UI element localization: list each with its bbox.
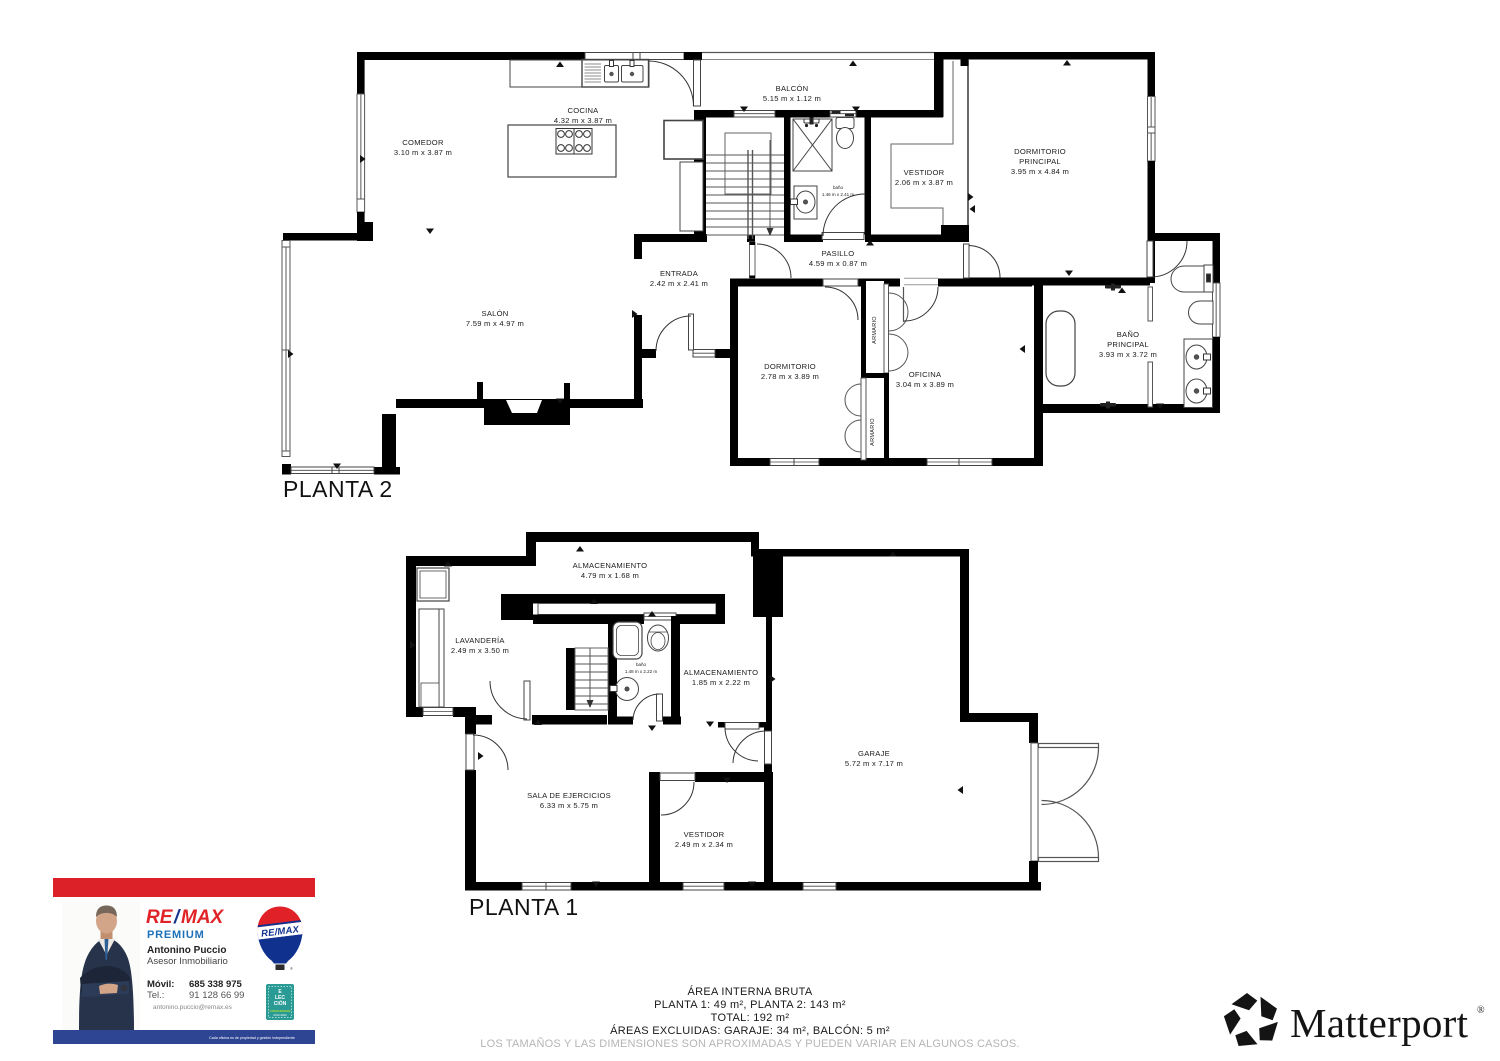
svg-text:ÁREA INTERNA BRUTA: ÁREA INTERNA BRUTA <box>688 985 813 998</box>
svg-text:DORMITORIO: DORMITORIO <box>1014 147 1066 156</box>
svg-text:3.04 m x 3.89 m: 3.04 m x 3.89 m <box>896 380 954 389</box>
svg-text:TOTAL: 192 m²: TOTAL: 192 m² <box>711 1012 790 1024</box>
svg-text:4.79 m x 1.68 m: 4.79 m x 1.68 m <box>581 571 639 580</box>
svg-text:Cada oficina es de propiedad y: Cada oficina es de propiedad y gestión i… <box>209 1036 295 1040</box>
svg-text:®: ® <box>1477 1005 1485 1016</box>
svg-text:®: ® <box>290 966 293 971</box>
svg-text:MAX: MAX <box>181 907 225 928</box>
svg-text:baño: baño <box>636 662 647 667</box>
svg-text:antonino.puccio@remax.es: antonino.puccio@remax.es <box>153 1004 233 1011</box>
svg-text:BAÑO: BAÑO <box>1117 330 1140 339</box>
svg-text:SALA DE EJERCICIOS: SALA DE EJERCICIOS <box>527 791 611 800</box>
svg-text:1.46 m x 2.41 m: 1.46 m x 2.41 m <box>822 192 855 197</box>
svg-text:ALMACENAMIENTO: ALMACENAMIENTO <box>684 668 759 677</box>
svg-text:PLANTA 1: 49 m², PLANTA 2: 143: PLANTA 1: 49 m², PLANTA 2: 143 m² <box>654 999 846 1011</box>
svg-text:3.93 m x 3.72 m: 3.93 m x 3.72 m <box>1099 350 1157 359</box>
svg-text:SALÓN: SALÓN <box>482 309 509 318</box>
svg-text:2.78 m x 3.89 m: 2.78 m x 3.89 m <box>761 372 819 381</box>
svg-text:RE: RE <box>146 907 174 928</box>
svg-text:PRINCIPAL: PRINCIPAL <box>1019 157 1061 166</box>
svg-text:PREMIUM: PREMIUM <box>147 929 205 941</box>
svg-text:DORMITORIO: DORMITORIO <box>764 362 816 371</box>
svg-text:5.72 m x 7.17 m: 5.72 m x 7.17 m <box>845 759 903 768</box>
svg-text:6.33 m x 5.75 m: 6.33 m x 5.75 m <box>540 801 598 810</box>
svg-text:4.32 m x 3.87 m: 4.32 m x 3.87 m <box>554 116 612 125</box>
svg-text:CIÓN: CIÓN <box>274 999 287 1007</box>
svg-text:VESTIDOR: VESTIDOR <box>684 830 725 839</box>
svg-text:4.59 m x 0.87 m: 4.59 m x 0.87 m <box>809 259 867 268</box>
svg-text:Antonino Puccio: Antonino Puccio <box>147 945 226 956</box>
svg-text:2.06 m x 3.87 m: 2.06 m x 3.87 m <box>895 178 953 187</box>
svg-text:COCINA: COCINA <box>567 106 599 115</box>
svg-text:ALMACENAMIENTO: ALMACENAMIENTO <box>573 561 648 570</box>
svg-text:5.15 m x 1.12 m: 5.15 m x 1.12 m <box>763 94 821 103</box>
svg-text:ENTRADA: ENTRADA <box>660 269 699 278</box>
svg-text:ARMARIO: ARMARIO <box>870 418 876 446</box>
svg-text:3.10 m x 3.87 m: 3.10 m x 3.87 m <box>394 148 452 157</box>
svg-text:1.85 m x 2.22 m: 1.85 m x 2.22 m <box>692 678 750 687</box>
svg-text:Matterport: Matterport <box>1290 1000 1469 1046</box>
svg-text:PLANTA 1: PLANTA 1 <box>469 894 579 920</box>
svg-text:COMEDOR: COMEDOR <box>402 138 444 147</box>
svg-text:Asesor Inmobiliario: Asesor Inmobiliario <box>147 956 228 967</box>
svg-text:2.49 m x 2.34 m: 2.49 m x 2.34 m <box>675 840 733 849</box>
svg-text:baño: baño <box>833 185 844 190</box>
svg-text:PASILLO: PASILLO <box>822 249 855 258</box>
svg-text:PRINCIPAL: PRINCIPAL <box>1107 340 1149 349</box>
svg-text:2.49 m x 3.50 m: 2.49 m x 3.50 m <box>451 646 509 655</box>
svg-text:ÁREAS EXCLUIDAS: GARAJE: 34 m²: ÁREAS EXCLUIDAS: GARAJE: 34 m², BALCÓN: … <box>610 1024 890 1037</box>
svg-text:7.59 m x 4.97 m: 7.59 m x 4.97 m <box>466 319 524 328</box>
svg-text:2.42 m x 2.41 m: 2.42 m x 2.41 m <box>650 279 708 288</box>
svg-text:2012-2022: 2012-2022 <box>273 1013 287 1017</box>
svg-text:1.48 m x 2.22 m: 1.48 m x 2.22 m <box>625 669 658 674</box>
svg-text:685 338 975: 685 338 975 <box>189 979 243 990</box>
svg-text:91 128 66 99: 91 128 66 99 <box>189 990 244 1001</box>
svg-text:LOS TAMAÑOS Y LAS DIMENSIONES: LOS TAMAÑOS Y LAS DIMENSIONES SON APROXI… <box>480 1037 1019 1050</box>
svg-text:Móvil:: Móvil: <box>147 979 174 990</box>
svg-text:PLANTA 2: PLANTA 2 <box>283 476 393 502</box>
svg-text:ARMARIO: ARMARIO <box>872 316 878 344</box>
svg-text:BALCÓN: BALCÓN <box>776 84 809 93</box>
svg-text:GARAJE: GARAJE <box>858 749 890 758</box>
svg-text:3.95 m x 4.84 m: 3.95 m x 4.84 m <box>1011 167 1069 176</box>
svg-text:LAVANDERÍA: LAVANDERÍA <box>455 636 505 645</box>
svg-text:Tel.:: Tel.: <box>147 990 164 1001</box>
svg-text:OFICINA: OFICINA <box>909 370 942 379</box>
svg-text:VESTIDOR: VESTIDOR <box>904 168 945 177</box>
